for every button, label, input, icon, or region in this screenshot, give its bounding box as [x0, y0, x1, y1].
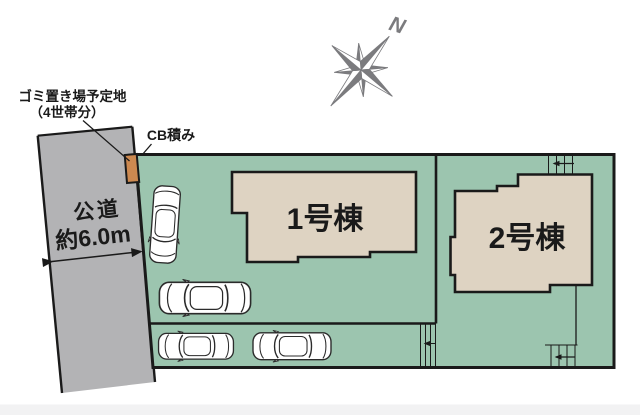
north-label: N [386, 12, 408, 39]
car-bottom-left [159, 331, 234, 361]
road-name-label: 公道 [72, 196, 122, 225]
building-1: 1号棟 [232, 172, 416, 262]
compass-rose: N [302, 12, 421, 132]
page-bottom-strip [0, 405, 640, 415]
car-middle [159, 279, 250, 316]
cb-wall-label: CB積み [147, 127, 195, 143]
site-plan-canvas: 1号棟 2号棟 公道 約6.0m ゴミ置き場予定地 （4世帯分） CB積み [0, 0, 640, 415]
cb-annotation: CB積み [142, 127, 195, 155]
building-2-label: 2号棟 [489, 222, 567, 255]
garbage-label-line2: （4世帯分） [29, 104, 104, 120]
building-1-label: 1号棟 [287, 203, 365, 236]
garbage-label-line1: ゴミ置き場予定地 [19, 88, 127, 104]
site-plan: 1号棟 2号棟 公道 約6.0m ゴミ置き場予定地 （4世帯分） CB積み [0, 0, 640, 415]
car-bottom-right [253, 330, 331, 362]
building-2: 2号棟 [451, 175, 593, 293]
